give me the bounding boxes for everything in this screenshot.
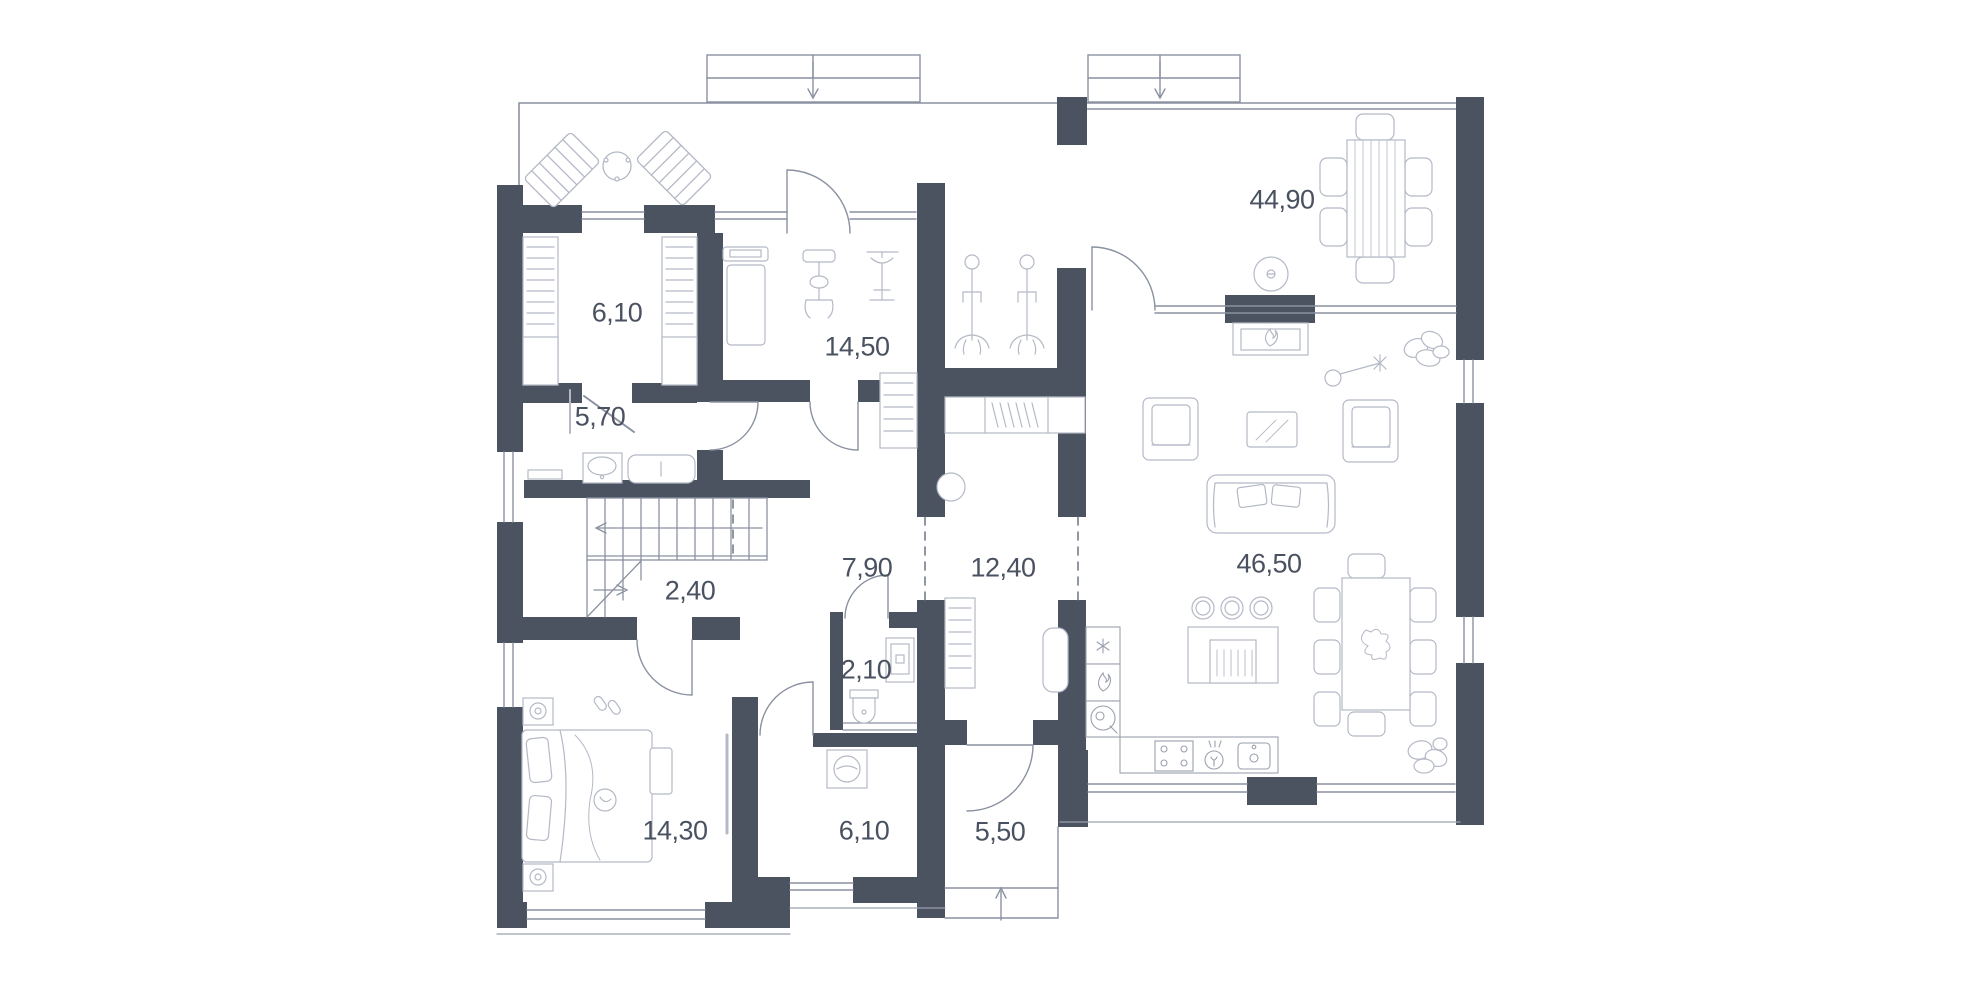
washing-machine-icon (827, 750, 867, 788)
exercise-bike-icon (803, 250, 835, 318)
armchair-icon (1343, 400, 1398, 462)
kitchen-sink-icon (1238, 743, 1270, 769)
bench-icon (1043, 628, 1068, 692)
zone-dashed-lines (733, 500, 1078, 600)
room-area-label-wardrobe: 6,10 (592, 298, 643, 329)
ceiling-fan-icon (1254, 257, 1288, 291)
coffee-table-icon (1247, 412, 1297, 447)
fireplace-icon (1233, 323, 1308, 355)
upper-living-furniture (1233, 114, 1449, 386)
laundry-fixtures (827, 750, 867, 788)
gym-hall-door (810, 402, 858, 450)
room-area-label-bathroom: 5,70 (575, 402, 626, 433)
exercise-machine-icon (867, 252, 898, 300)
floor-plan-canvas: 6,10 5,70 14,50 44,90 2,40 7,90 12,40 46… (0, 0, 1980, 990)
terrace-door (787, 170, 850, 233)
room-area-label-bedroom: 14,30 (642, 816, 707, 847)
slippers-icon (593, 695, 622, 716)
room-area-label-entry: 5,50 (975, 817, 1026, 848)
bathtub-icon (628, 455, 695, 483)
lounger-icon (636, 130, 712, 206)
room-area-label-corridor: 12,40 (970, 553, 1035, 584)
toilet-icon (850, 690, 878, 723)
treadmill-icon (723, 247, 768, 345)
plant-icon (1402, 328, 1449, 368)
bed-icon (522, 730, 652, 862)
lounger-icon (524, 132, 600, 208)
round-mirror-icon (937, 473, 965, 501)
laundry-door (760, 682, 813, 735)
bedroom-furniture (522, 695, 727, 891)
ski-machine-icon (955, 255, 989, 354)
room-area-label-dining-living: 44,90 (1249, 185, 1314, 216)
kitchen-island-icon (1188, 597, 1278, 683)
room-area-label-kitchen-living: 46,50 (1236, 549, 1301, 580)
cooktop-icon (1155, 741, 1193, 771)
room-area-label-stairs: 2,40 (665, 576, 716, 607)
bedroom-bench-icon (650, 748, 672, 794)
room-area-label-wc: 2,10 (841, 655, 892, 686)
living-furniture (1143, 398, 1449, 773)
entry-inner-door (967, 745, 1033, 811)
floor-lamp-icon (1325, 355, 1386, 386)
dining-table-icon (1320, 114, 1432, 283)
bathroom-side-door (710, 402, 758, 450)
side-table-icon (603, 152, 631, 181)
plant-icon (1406, 738, 1449, 773)
skylight-icon (707, 55, 1240, 102)
nightstand-icon (523, 864, 553, 891)
sink-icon (583, 453, 622, 483)
terrace-furniture (524, 130, 712, 208)
sofa-icon (1207, 475, 1335, 533)
room-area-label-gym: 14,50 (824, 332, 889, 363)
bedroom-door (637, 640, 692, 695)
ski-machine-icon (1010, 255, 1044, 354)
room-area-label-laundry: 6,10 (839, 816, 890, 847)
armchair-icon (1143, 398, 1198, 460)
nightstand-icon (523, 698, 553, 725)
gym-closet-icon (880, 373, 917, 448)
living-room-door (1092, 247, 1155, 310)
room-area-label-hall: 7,90 (842, 553, 893, 584)
dining-table-8-icon (1314, 554, 1436, 736)
